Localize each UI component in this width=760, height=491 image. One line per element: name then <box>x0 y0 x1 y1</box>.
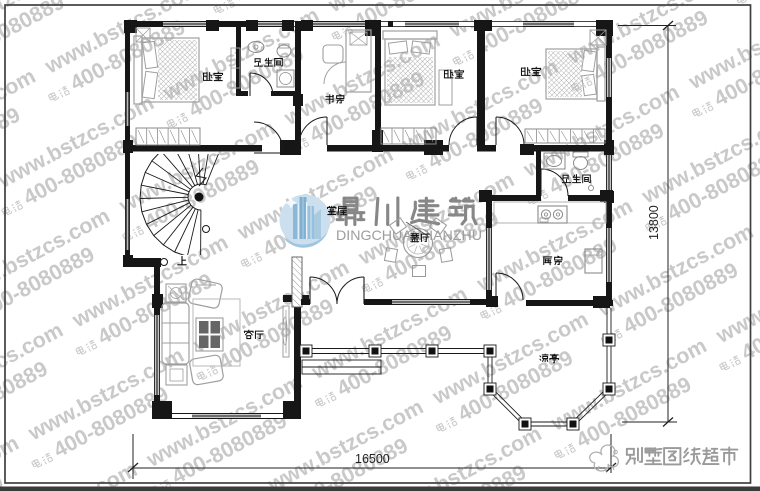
svg-text:DINGCHUANJIANZHU: DINGCHUANJIANZHU <box>336 227 482 243</box>
svg-text:13800: 13800 <box>647 205 661 240</box>
svg-text:16500: 16500 <box>355 452 390 466</box>
